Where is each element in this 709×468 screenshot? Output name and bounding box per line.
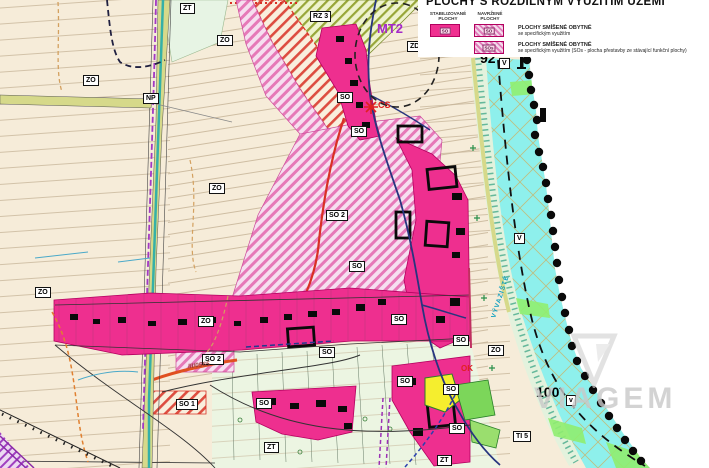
legend-swatch-sos-proposed: SOs [474, 41, 504, 54]
area-code-label: SO 1 [176, 399, 198, 410]
area-code-label: SO [256, 398, 272, 409]
area-code-label: ZO [209, 183, 225, 194]
area-code-label: RZ 3 [310, 11, 331, 22]
area-code-label: ZO [217, 35, 233, 46]
area-code-label: SO 2 [326, 210, 348, 221]
area-code-label: SO [443, 384, 459, 395]
zoning-map-viewport: ZT RZ 3 ZO ZO NP ZO SO SO SO 2 SO ZO ZO … [0, 0, 709, 468]
area-code-label: SO [319, 347, 335, 358]
cs-marker [364, 100, 378, 114]
legend-row-1-line2: se specifickým využitím [518, 31, 703, 37]
area-code-label: ZT [437, 455, 452, 466]
legend-swatch-so-stabilized: SO [430, 24, 460, 37]
note-cs: CS [378, 100, 391, 110]
area-code-label: ZT [264, 442, 279, 453]
area-code-label: SO [351, 126, 367, 137]
legend-swatch-so-proposed: SO [474, 24, 504, 37]
legend-col-proposed: NAVRŽENÉ PLOCHY [472, 11, 508, 21]
legend-title: PLOCHY S ROZDÍLNÝM VYUŽITÍM ÚZEMÍ [426, 0, 665, 8]
legend-panel: PLOCHY S ROZDÍLNÝM VYUŽITÍM ÚZEMÍ STABIL… [418, 0, 709, 57]
area-code-label: ZO [83, 75, 99, 86]
area-code-label: SO [397, 376, 413, 387]
area-code-label: TI 5 [513, 431, 531, 442]
area-code-label: SO [453, 335, 469, 346]
legend-swatch-code: SO [440, 27, 451, 34]
note-mt2: MT2 [377, 21, 403, 36]
area-code-label: SO [449, 423, 465, 434]
area-code-label: ZO [35, 287, 51, 298]
legend-swatch-code: SO [484, 27, 495, 34]
area-code-label: NP [143, 93, 159, 104]
legend-row-1-text: PLOCHY SMÍŠENÉ OBYTNÉ se specifickým vyu… [518, 25, 703, 37]
area-code-label: ZO [198, 316, 214, 327]
legend-swatch-code: SOs [482, 44, 495, 51]
legend-row-2-line2: se specifickým využitím (SOs - plocha př… [518, 48, 703, 54]
legend-col-stabilized: STABILIZOVANÉ PLOCHY [426, 11, 470, 21]
area-code-label: SO [391, 314, 407, 325]
area-code-label: V [514, 233, 525, 244]
area-code-label: V [499, 58, 510, 69]
area-code-label: ZO [488, 345, 504, 356]
area-code-label: SO [337, 92, 353, 103]
watermark-diamond-icon [566, 330, 622, 388]
area-code-label: ZT [180, 3, 195, 14]
area-code-label: SO [349, 261, 365, 272]
legend-row-2-text: PLOCHY SMÍŠENÉ OBYTNÉ se specifickým vyu… [518, 42, 703, 54]
note-ok: OK [461, 364, 473, 373]
